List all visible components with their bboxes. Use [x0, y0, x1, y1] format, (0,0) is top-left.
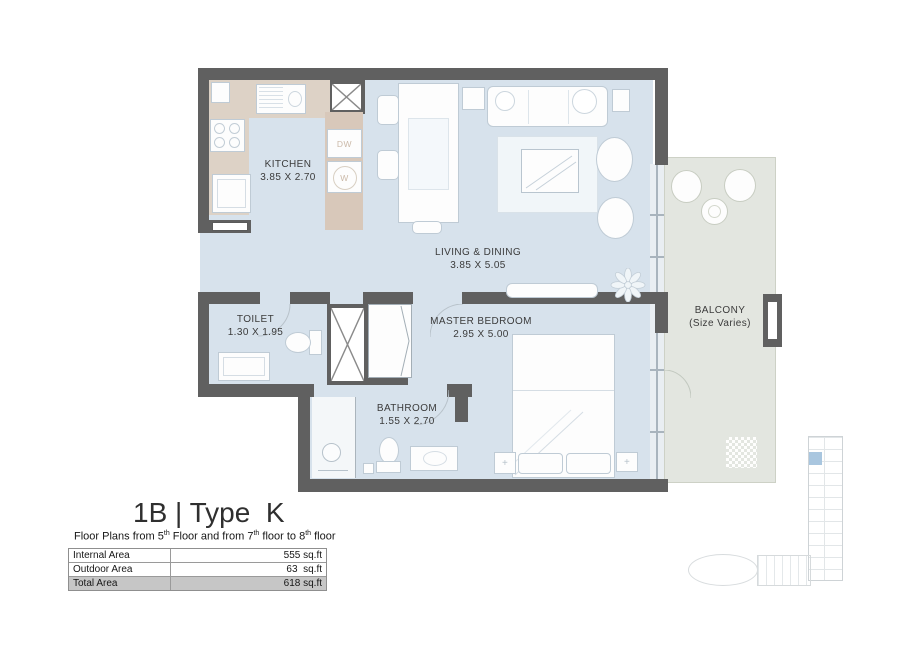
room-name: LIVING & DINING — [408, 246, 548, 259]
area-row-label: Outdoor Area — [69, 563, 171, 576]
table-row: Outdoor Area 63 sq.ft — [69, 563, 326, 577]
wall-toilet-left — [198, 292, 209, 397]
wall-mid-b — [290, 292, 330, 304]
pillow — [566, 453, 611, 474]
burner — [214, 137, 225, 148]
room-name: BATHROOM — [350, 402, 464, 415]
floor-plan-sheet: DW W KITCHEN 3.85 X 2.70 — [0, 0, 915, 655]
wall-top — [198, 68, 668, 80]
dining-table — [398, 83, 459, 223]
wall-toilet-bottom — [198, 384, 314, 397]
area-row-value: 63 sq.ft — [171, 563, 326, 576]
balcony-door-arc — [664, 370, 691, 398]
balcony-table-inner — [708, 205, 721, 218]
room-dims: 3.85 X 2.70 — [231, 171, 345, 184]
plan-title: 1B | Type K — [133, 497, 285, 529]
burner — [229, 137, 240, 148]
room-name: BALCONY — [664, 304, 776, 317]
room-dims: 3.85 X 5.05 — [408, 259, 548, 272]
vanity-sink — [423, 451, 447, 466]
sofa-seat-line — [568, 90, 569, 124]
table-runner — [408, 118, 449, 190]
sofa-cushion — [495, 91, 515, 111]
area-row-value: 555 sq.ft — [171, 549, 326, 562]
shower-head — [322, 443, 341, 462]
window-tick — [650, 431, 664, 433]
toilet-label: TOILET 1.30 X 1.95 — [208, 313, 303, 339]
entry-door-leaf — [212, 222, 248, 231]
bathroom-vanity — [410, 446, 458, 471]
room-dims: 2.95 X 5.00 — [411, 328, 551, 341]
glass-top-lines — [522, 150, 578, 192]
wall-left-upper — [198, 68, 209, 233]
shaft-x-icon — [331, 308, 364, 381]
area-row-label: Total Area — [69, 577, 171, 590]
balcony-chair — [724, 169, 756, 202]
side-table — [462, 87, 485, 110]
living-label: LIVING & DINING 3.85 X 5.05 — [408, 246, 548, 272]
floor-drain — [363, 463, 374, 474]
lounge-chair — [597, 197, 634, 239]
coffee-table — [521, 149, 579, 193]
sofa-seat-line — [528, 90, 529, 124]
keyplan-wing — [757, 555, 811, 586]
dining-chair — [377, 150, 399, 180]
wall-bottom — [298, 479, 668, 492]
plant-icon — [610, 268, 646, 307]
keyplan-unit-highlight — [809, 452, 822, 465]
wall-wardrobe-bottom — [363, 377, 408, 385]
kitchen-sink — [256, 84, 306, 114]
area-row-label: Internal Area — [69, 549, 171, 562]
subtitle-part: floor to 8 — [259, 531, 305, 543]
wc2-tank — [376, 461, 401, 473]
wardrobe — [368, 304, 412, 378]
duct-shaft-top — [328, 80, 365, 114]
room-name: KITCHEN — [231, 158, 345, 171]
toilet-vanity — [218, 352, 270, 381]
dining-chair — [377, 95, 399, 125]
room-dims: (Size Varies) — [664, 317, 776, 330]
subtitle-part: Floor Plans from 5 — [74, 531, 164, 543]
wardrobe-bifold-icon — [399, 305, 411, 377]
subtitle-part: Floor and from 7 — [170, 531, 254, 543]
wall-right-upper — [655, 68, 668, 165]
stove — [210, 119, 245, 152]
side-table — [612, 89, 630, 112]
wc2-bowl — [379, 437, 399, 464]
sofa-cushion — [572, 89, 597, 114]
dishwasher-label: DW — [328, 139, 361, 149]
keyplan-oval — [688, 554, 758, 586]
tv-console — [506, 283, 598, 298]
vanity-basin — [223, 357, 265, 376]
window-tick — [650, 369, 664, 371]
room-dims: 1.55 X 2.70 — [350, 415, 464, 428]
balcony-label: BALCONY (Size Varies) — [664, 304, 776, 330]
burner — [229, 123, 240, 134]
kitchen-column — [211, 82, 230, 103]
dining-chair — [412, 221, 442, 234]
bathroom-label: BATHROOM 1.55 X 2.70 — [350, 402, 464, 428]
dishwasher: DW — [327, 129, 362, 158]
room-name: TOILET — [208, 313, 303, 326]
shower-drain — [318, 470, 348, 471]
kitchen-label: KITCHEN 3.85 X 2.70 — [231, 158, 345, 184]
sink-drainer — [259, 87, 283, 111]
wall-wardrobe-top — [363, 292, 413, 304]
duct-shaft-mid — [327, 304, 368, 385]
wall-step-vertical — [298, 384, 310, 492]
window-tick — [650, 256, 664, 258]
lounge-chair — [596, 137, 633, 182]
subtitle-part: floor — [311, 531, 335, 543]
nightstand-marker: + — [624, 458, 630, 468]
balcony-chair — [671, 170, 702, 203]
room-name: MASTER BEDROOM — [411, 315, 551, 328]
shaft-x-icon — [332, 84, 361, 110]
room-dims: 1.30 X 1.95 — [208, 326, 303, 339]
sofa — [487, 86, 608, 127]
bed-duvet-band — [513, 335, 614, 391]
nightstand: + — [616, 452, 638, 472]
balcony-tile-pattern — [726, 437, 757, 468]
table-row-total: Total Area 618 sq.ft — [69, 577, 326, 590]
balcony-table — [701, 198, 728, 225]
pillow — [518, 453, 563, 474]
master-bedroom-label: MASTER BEDROOM 2.95 X 5.00 — [411, 315, 551, 341]
nightstand-marker: + — [502, 459, 508, 469]
table-row: Internal Area 555 sq.ft — [69, 549, 326, 563]
burner — [214, 123, 225, 134]
plan-subtitle: Floor Plans from 5th Floor and from 7th … — [74, 530, 336, 543]
sink-basin — [288, 91, 302, 107]
area-table: Internal Area 555 sq.ft Outdoor Area 63 … — [68, 548, 327, 591]
area-row-value: 618 sq.ft — [171, 577, 326, 590]
nightstand: + — [494, 452, 516, 474]
floor-entry — [200, 233, 212, 292]
window-tick — [650, 214, 664, 216]
